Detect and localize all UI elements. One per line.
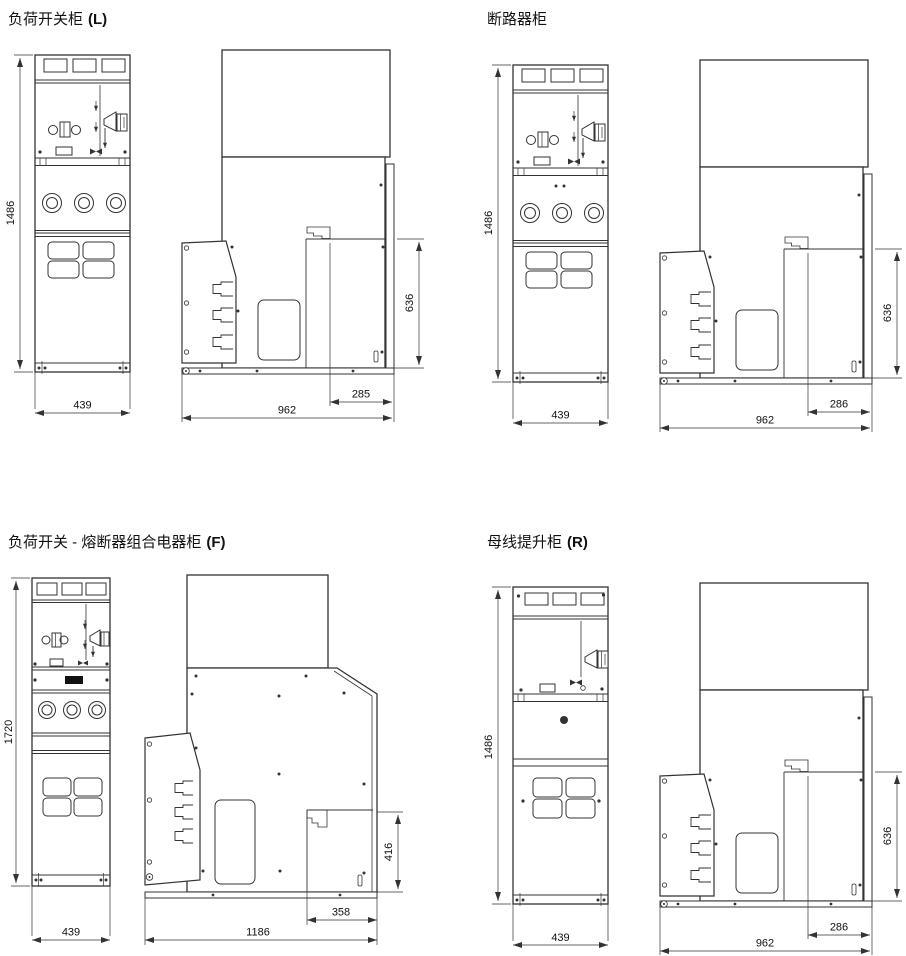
switchgear-dimension-drawing: 负荷开关柜(L) 1486 439 636 285 962 断路器柜 1486 … [0,0,906,956]
front-view [492,587,608,945]
gas-tank-box [187,575,328,668]
dim-lower-rear-depth: 286 [830,399,848,411]
dim-overall-height: 1720 [3,720,15,744]
dim-rear-compartment-height: 636 [404,294,416,312]
dim-overall-height: 1486 [5,201,17,225]
front-view [11,578,110,940]
panel-title-code: (L) [88,11,107,28]
dim-overall-height: 1486 [483,211,495,235]
panel-title: 负荷开关柜(L) [8,11,107,28]
vent-windows [37,583,106,595]
panel-title-code: (R) [567,534,588,551]
rating-label [65,676,83,684]
drawing-sheet: 负荷开关柜(L) 1486 439 636 285 962 断路器柜 1486 … [0,0,906,956]
dim-front-width: 439 [551,932,569,944]
cable-compartment [145,733,200,885]
push-button [563,185,566,188]
push-button [555,185,558,188]
front-view [492,65,608,423]
panel-title: 断路器柜 [487,11,547,28]
panel-title-text: 母线提升柜 [487,534,562,551]
panel-title: 负荷开关 - 熔断器组合电器柜(F) [8,534,226,551]
panel-title: 母线提升柜(R) [487,534,588,551]
panel-switch-fuse-cabinet: 负荷开关 - 熔断器组合电器柜(F) [3,534,403,945]
dim-front-width: 439 [62,927,80,939]
dim-depth: 962 [278,405,296,417]
panel-title-text: 负荷开关柜 [8,11,83,28]
cabinet-outline [32,578,110,886]
side-view [660,583,902,955]
cabinet-outline [513,587,608,904]
panel-circuit-breaker-cabinet: 断路器柜 1486 439 636 286 962 [483,11,902,432]
dim-lower-rear-depth: 286 [830,922,848,934]
panel-title-code: (F) [206,534,225,551]
side-view [182,50,424,422]
dim-depth: 962 [756,415,774,427]
dim-depth: 962 [756,938,774,950]
base-sill [145,892,377,898]
panel-title-text: 负荷开关 - 熔断器组合电器柜 [8,534,201,551]
panel-knob [560,716,568,724]
side-view [660,60,902,432]
dim-front-width: 439 [73,400,91,412]
panel-busbar-riser-cabinet: 母线提升柜(R) [483,534,902,955]
dim-depth: 1186 [246,927,270,939]
panel-title-text: 断路器柜 [487,11,547,28]
dim-rear-compartment-height: 636 [882,304,894,322]
vent-windows [517,593,605,605]
dim-rear-compartment-height: 416 [383,843,395,861]
dim-rear-compartment-height: 636 [882,827,894,845]
panel-load-switch-cabinet: 负荷开关柜(L) 1486 439 636 285 962 [5,11,424,422]
dim-overall-height: 1486 [483,735,495,759]
dim-lower-rear-depth: 358 [332,907,350,919]
side-view [145,575,403,945]
dim-lower-rear-depth: 285 [352,389,370,401]
front-view [14,55,130,413]
dim-front-width: 439 [551,410,569,422]
